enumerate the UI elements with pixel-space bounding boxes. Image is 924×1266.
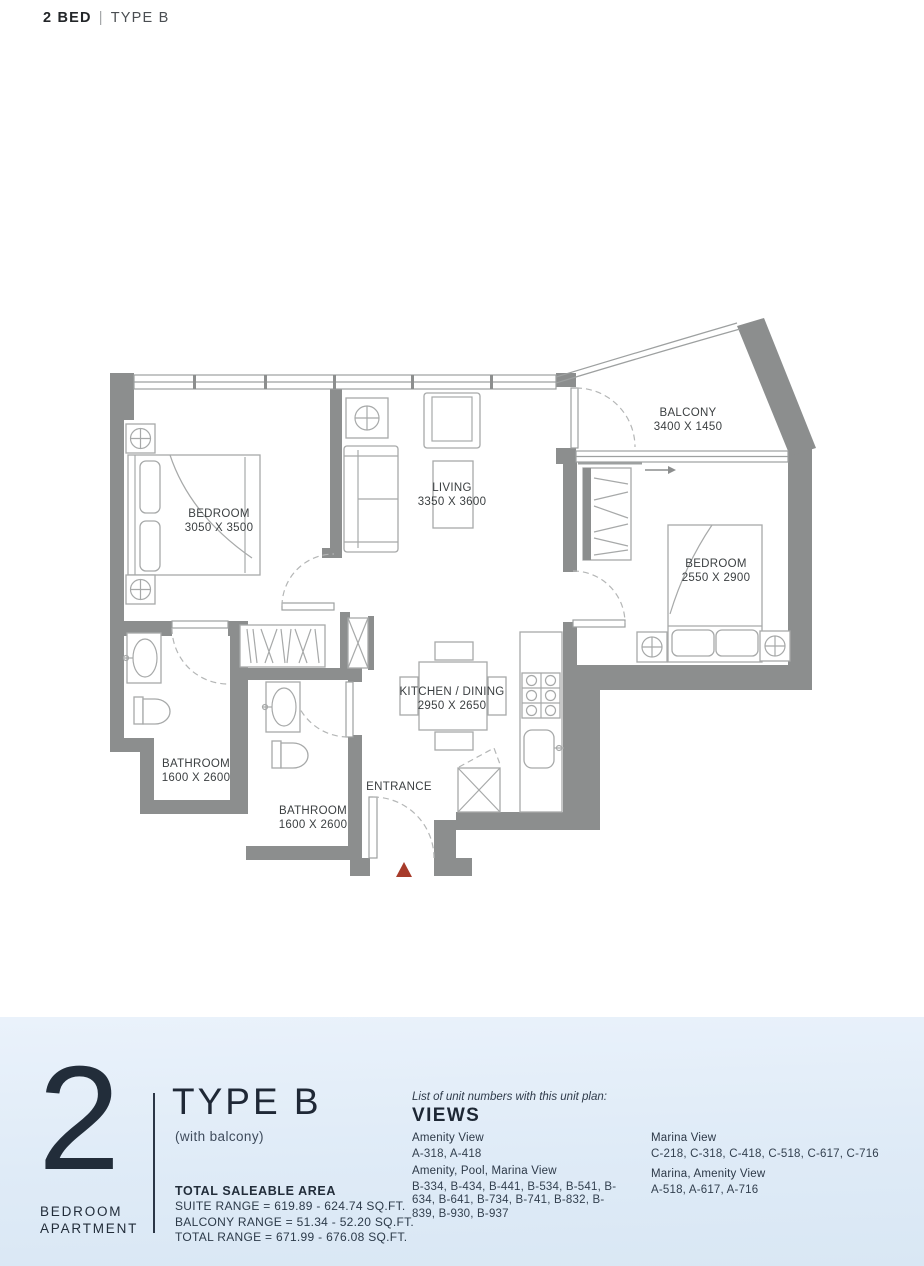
shaft-icon [458,768,500,812]
footer-panel: 2 BEDROOM APARTMENT TYPE B (with balcony… [0,1017,924,1266]
view-group: Amenity, Pool, Marina View B-334, B-434,… [412,1165,617,1221]
nightstand-lamp-icon [760,631,790,661]
room-label-entrance: ENTRANCE [366,781,432,793]
room-dims: 2950 X 2650 [418,700,487,712]
duct-icon [348,618,368,668]
bedroom1-door [282,554,334,610]
plan-type-title: TYPE B [172,1081,322,1123]
sofa-icon [344,446,398,552]
brochure-page: 2 BED|TYPE B [0,0,924,1266]
balcony-glass-curve [556,329,740,383]
room-dims: 3050 X 3500 [185,522,254,534]
view-units: A-318, A-418 [412,1148,632,1162]
stove-icon [522,673,560,718]
room-dims: 1600 X 2600 [279,819,348,831]
views-note: List of unit numbers with this unit plan… [412,1091,607,1103]
nightstand-lamp-icon [637,632,667,662]
view-units: C-218, C-318, C-418, C-518, C-617, C-716 [651,1148,901,1162]
slide-direction-arrow-icon [645,466,676,474]
floor-plan: BEDROOM 3050 X 3500 LIVING 3350 X 3600 B… [0,0,924,1017]
view-label: Marina, Amenity View [651,1168,901,1182]
view-group: Marina, Amenity View A-518, A-617, A-716 [651,1168,901,1197]
view-units: B-334, B-434, B-441, B-534, B-541, B-634… [412,1181,617,1222]
total-range: TOTAL RANGE = 671.99 - 676.08 SQ.FT. [175,1230,414,1245]
view-group: Marina View C-218, C-318, C-418, C-518, … [651,1132,901,1161]
room-name: BATHROOM [162,758,230,770]
room-name: BEDROOM [188,508,250,520]
view-label: Marina View [651,1132,901,1146]
footer-divider [153,1093,155,1233]
room-dims: 1600 X 2600 [162,772,231,784]
bathroom2-door [293,682,353,737]
room-dims: 3350 X 3600 [418,496,487,508]
shaft-door-swing [459,748,501,767]
toilet-icon [134,697,170,724]
bed-icon [668,525,762,662]
view-group: Amenity View A-318, A-418 [412,1132,632,1161]
plan-type-subtitle: (with balcony) [175,1129,264,1144]
balcony-range: BALCONY RANGE = 51.34 - 52.20 SQ.FT. [175,1215,414,1230]
bedroom2-door [573,571,625,627]
balcony-door [571,388,635,448]
room-label-bathroom2: BATHROOM 1600 X 2600 [279,805,348,831]
entrance-door [369,797,434,858]
room-name: BALCONY [659,407,716,419]
side-table-lamp-icon [346,398,388,438]
area-heading: TOTAL SALEABLE AREA [175,1184,414,1199]
view-label: Amenity View [412,1132,632,1146]
saleable-area-block: TOTAL SALEABLE AREA SUITE RANGE = 619.89… [175,1184,414,1246]
room-dims: 2550 X 2900 [682,572,751,584]
room-name: BEDROOM [685,558,747,570]
bathtub-sink-icon [263,682,301,732]
view-units: A-518, A-617, A-716 [651,1184,901,1198]
room-name: LIVING [432,482,472,494]
bathtub-sink-icon [124,633,162,683]
nightstand-lamp-icon [126,575,155,604]
armchair-icon [424,393,480,448]
suite-range: SUITE RANGE = 619.89 - 624.74 SQ.FT. [175,1199,414,1214]
toilet-icon [272,741,308,768]
nightstand-lamp-icon [126,424,155,453]
balcony-angled-wall [737,318,816,456]
views-heading: VIEWS [412,1105,480,1127]
wardrobe-icon [240,625,325,667]
room-name: KITCHEN / DINING [399,686,504,698]
bathroom1-door [172,621,228,684]
unit-count-label: BEDROOM APARTMENT [40,1203,138,1237]
coffee-table-icon [433,461,473,528]
unit-count-numeral: 2 [38,1045,118,1193]
wardrobe-icon [583,468,631,560]
room-label-bathroom1: BATHROOM 1600 X 2600 [162,758,231,784]
view-label: Amenity, Pool, Marina View [412,1165,617,1179]
room-name: BATHROOM [279,805,347,817]
kitchen-counter [520,632,562,812]
room-label-balcony: BALCONY 3400 X 1450 [654,407,723,433]
room-dims: 3400 X 1450 [654,421,723,433]
entry-marker-icon [396,862,412,877]
